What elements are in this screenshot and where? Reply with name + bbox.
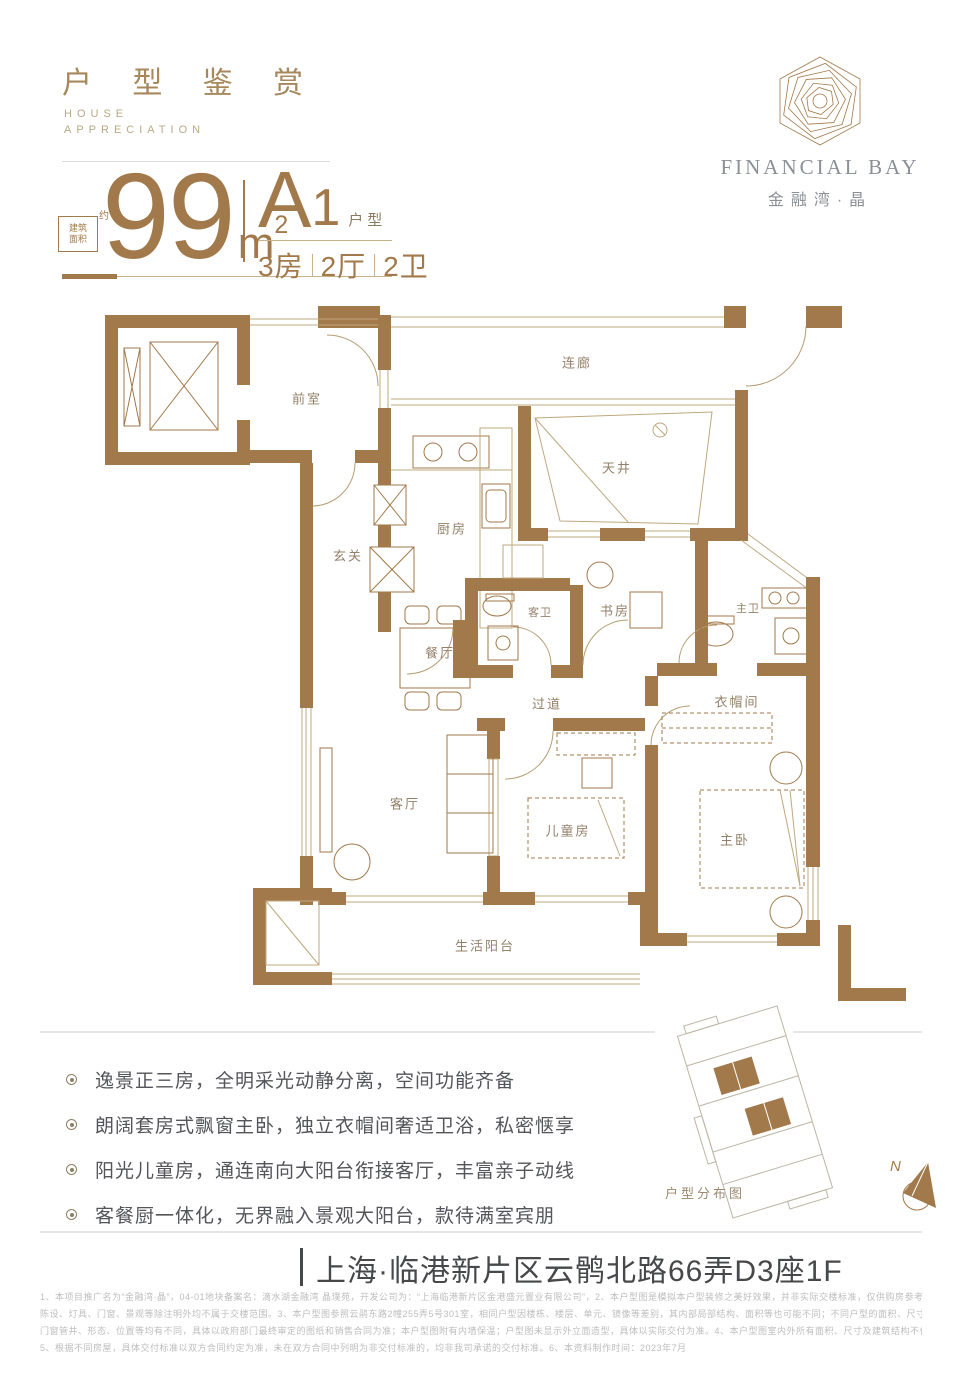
room-label-master-bath: 主卫: [736, 600, 760, 616]
type-number: 1: [311, 184, 340, 232]
room-label-master-bed: 主卧: [720, 830, 750, 849]
highlight-item: 客餐厨一体化，无界融入景观大阳台，款待满室宾朋: [66, 1201, 555, 1228]
room-label-dining: 餐厅: [425, 643, 455, 662]
highlight-text: 客餐厨一体化，无界融入景观大阳台，款待满室宾朋: [95, 1201, 555, 1228]
disclaimer-line: 陈设、灯具、门窗、景观等除注明外均不属于交楼范围。3、本户型图参照云鹃东路2幢2…: [40, 1307, 922, 1320]
disclaimer-line: 5、根据不同房屋，具体交付标准以双方合同约定为准，未在双方合同中列明为非交付标准…: [40, 1341, 922, 1354]
disclaimer-line: 门窗管井、形态、位置等均有不同，具体以政府部门最终审定的图纸和销售合同为准；本户…: [40, 1324, 922, 1337]
page-subtitle-2: APPRECIATION: [64, 124, 205, 136]
area-block: 建筑 面积 约 99 m 2: [58, 168, 288, 264]
compass-label: N: [890, 1158, 901, 1175]
highlight-item: 逸景正三房，全明采光动静分离，空间功能齐备: [66, 1066, 515, 1093]
room-label-hallway: 过道: [532, 694, 562, 713]
area-note-box: 建筑 面积 约: [58, 216, 98, 252]
highlight-item: 朗阔套房式飘窗主卧，独立衣帽间奢适卫浴，私密惬享: [66, 1111, 575, 1138]
room-label-kitchen: 厨房: [437, 519, 467, 538]
room-label-living: 客厅: [390, 794, 420, 813]
disclaimer-line: 1、本项目推广名为“金融湾·晶”，04-01地块备案名：滴水湖金融湾 晶璞苑，开…: [40, 1290, 922, 1303]
bullet-icon: [66, 1074, 77, 1085]
highlight-text: 逸景正三房，全明采光动静分离，空间功能齐备: [95, 1066, 515, 1093]
page-title: 户 型 鉴 赏: [62, 58, 319, 102]
room-label-balcony: 生活阳台: [455, 936, 515, 955]
sitemap-caption: 户型分布图: [665, 1183, 745, 1202]
area-value: 99: [102, 168, 234, 264]
brand-cn-name: 金融湾·晶: [720, 186, 920, 210]
room-label-corridor-bridge: 连廊: [562, 353, 592, 372]
room-label-study: 书房: [600, 601, 630, 620]
layout-separator: [312, 254, 313, 276]
bullet-icon: [66, 1119, 77, 1130]
compass-icon: [903, 1162, 936, 1210]
address-text: 上海·临港新片区云鹘北路66弄D3座1F: [316, 1246, 843, 1290]
brand-block: FINANCIAL BAY 金融湾·晶: [720, 55, 920, 210]
brand-name: FINANCIAL BAY: [720, 155, 920, 180]
type-suffix: 户型: [348, 209, 386, 230]
page-subtitle-1: HOUSE: [64, 108, 128, 120]
bullet-icon: [66, 1209, 77, 1220]
room-label-lightwell: 天井: [602, 458, 632, 477]
layout-separator: [374, 254, 375, 276]
baths-count: 2卫: [383, 245, 429, 285]
bullet-icon: [66, 1164, 77, 1175]
room-label-closet: 衣帽间: [714, 692, 759, 711]
layout-row: 3房 2厅 2卫: [258, 245, 429, 285]
stat-vertical-divider: [243, 180, 245, 262]
area-note-suffix: 约: [99, 211, 109, 222]
room-label-guest-bath: 客卫: [528, 604, 552, 620]
brand-logo-icon: [772, 55, 868, 147]
room-label-children: 儿童房: [545, 821, 590, 840]
room-label-front-room: 前室: [292, 389, 322, 408]
highlight-text: 朗阔套房式飘窗主卧，独立衣帽间奢适卫浴，私密惬享: [95, 1111, 575, 1138]
rooms-count: 3房: [258, 245, 304, 285]
type-letter: A: [258, 168, 311, 232]
highlight-text: 阳光儿童房，通连南向大阳台衔接客厅，丰富亲子动线: [95, 1156, 575, 1183]
highlight-item: 阳光儿童房，通连南向大阳台衔接客厅，丰富亲子动线: [66, 1156, 575, 1183]
unit-type-block: A 1 户型 3房 2厅 2卫: [258, 168, 429, 285]
halls-count: 2厅: [321, 245, 367, 285]
area-underline-thick: [62, 274, 117, 279]
address-accent-bar: [300, 1248, 303, 1286]
room-label-foyer: 玄关: [333, 546, 363, 565]
